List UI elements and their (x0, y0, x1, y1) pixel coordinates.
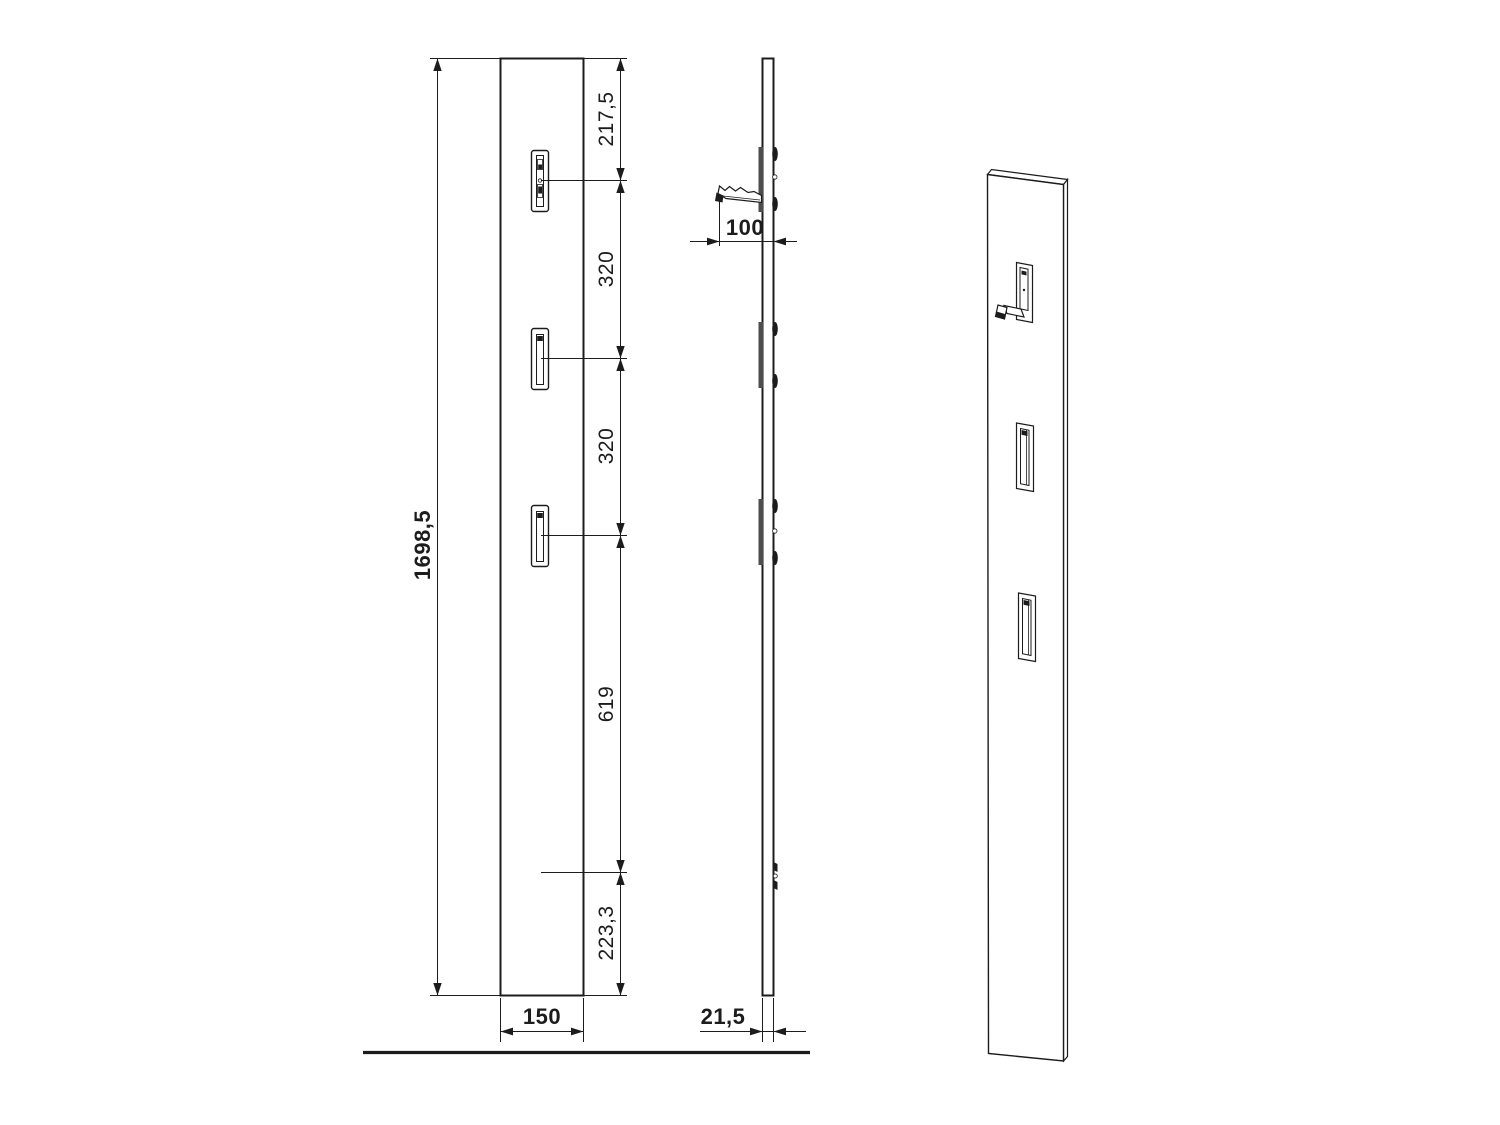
arrow-left-icon (501, 1028, 514, 1036)
arrow-left-icon (774, 238, 787, 246)
label-hook-projection: 100 (726, 215, 764, 240)
arrow-down-icon (616, 860, 624, 873)
hook-slot-bottom-perspective (1019, 593, 1036, 662)
hook-plate-bottom-side (759, 499, 764, 565)
label-hook3-to-mount: 619 (595, 686, 618, 723)
wall-mount-bracket-side (773, 861, 777, 892)
dimension-chain-right: 217,5 320 320 619 223,3 (584, 59, 627, 996)
label-panel-thickness: 21,5 (701, 1004, 746, 1029)
arrow-up-icon (616, 536, 624, 549)
arrow-down-icon (616, 346, 624, 359)
arrow-right-icon (707, 238, 720, 246)
label-hook1-to-hook2: 320 (595, 251, 618, 288)
arrow-down-icon (433, 983, 441, 996)
open-hook-side (715, 186, 762, 203)
dimension-panel-thickness: 21,5 (700, 998, 806, 1042)
side-view: 100 21,5 (690, 59, 806, 1043)
label-total-height: 1698,5 (410, 510, 435, 580)
dimension-hook-projection: 100 (690, 197, 797, 246)
side-panel-outline (763, 59, 774, 996)
arrow-down-icon (616, 168, 624, 181)
label-top-to-hook1: 217,5 (595, 91, 618, 146)
arrow-up-icon (616, 59, 624, 72)
hook-slot-middle-perspective (1017, 423, 1034, 492)
arrow-right-icon (750, 1028, 763, 1036)
dimension-panel-width: 150 (501, 998, 584, 1042)
technical-drawing-canvas: 1698,5 217,5 320 320 619 223,3 (0, 0, 1500, 1125)
arrow-down-icon (616, 983, 624, 996)
label-panel-width: 150 (523, 1004, 561, 1029)
perspective-view (988, 170, 1068, 1062)
label-mount-to-bottom: 223,3 (595, 905, 618, 960)
arrow-up-icon (616, 873, 624, 886)
arrow-right-icon (571, 1028, 584, 1036)
arrow-up-icon (616, 359, 624, 372)
dimension-total-height: 1698,5 (410, 59, 500, 996)
arrow-down-icon (616, 523, 624, 536)
label-hook2-to-hook3: 320 (595, 428, 618, 465)
front-view: 1698,5 217,5 320 320 619 223,3 (410, 59, 627, 1043)
arrow-up-icon (433, 59, 441, 72)
arrow-up-icon (616, 181, 624, 194)
arrow-left-icon (774, 1028, 787, 1036)
hook-plate-middle-side (759, 322, 764, 388)
coat-rack-panel-drawing: 1698,5 217,5 320 320 619 223,3 (0, 0, 1500, 1125)
